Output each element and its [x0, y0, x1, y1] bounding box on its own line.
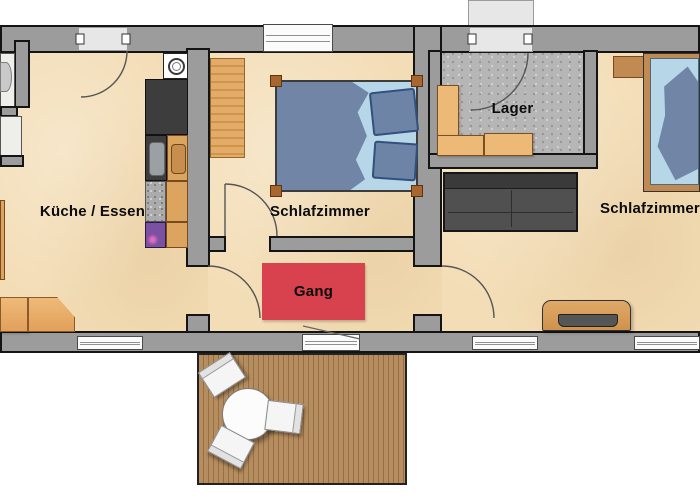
wall-hallway-top-left	[208, 236, 226, 252]
sofa-seam	[511, 190, 512, 227]
middle-bedroom-label: Schlafzimmer	[225, 203, 415, 220]
sink-drainer	[171, 144, 186, 174]
kitchen-window-south	[77, 336, 143, 350]
wardrobe	[210, 58, 245, 158]
kitchen-cabinet-2	[166, 222, 188, 248]
corner-bench-left	[0, 297, 28, 332]
wall-kitchen-bedroom	[186, 48, 210, 267]
double-bed-middle	[275, 80, 418, 192]
wall-left-stub	[14, 40, 30, 108]
middle-bedroom-window	[263, 24, 333, 52]
kitchen-sink-left	[145, 135, 167, 181]
sofa	[443, 172, 578, 232]
nightstand	[613, 56, 645, 78]
storage-shelf-bottom-2	[484, 133, 533, 156]
storage-label: Lager	[442, 100, 583, 117]
kitchen-sink-right	[167, 135, 188, 181]
kitchen-entry-threshold	[78, 27, 128, 51]
right-bedroom-window-south-1	[472, 336, 538, 350]
blanket	[651, 59, 698, 184]
kitchen-counter-dark	[145, 79, 188, 135]
toilet	[0, 62, 12, 92]
wall-side-room-b	[0, 155, 24, 167]
kitchen-label: Küche / Essen	[0, 203, 185, 220]
stove-burner-icon	[168, 58, 185, 75]
dishwasher	[145, 222, 166, 248]
wall-hallway-top-right	[269, 236, 418, 252]
storage-shelf-bottom-1	[437, 135, 484, 156]
desk-tray	[558, 314, 618, 327]
pillow-top	[369, 88, 419, 137]
bed-post	[411, 75, 423, 87]
duvet	[277, 82, 369, 190]
sink-basin	[149, 142, 165, 176]
pillow-bottom	[372, 141, 419, 182]
side-room-partial-2	[0, 116, 22, 156]
sofa-back	[445, 174, 576, 189]
floor-plan: Gang Küche / Essen Schlafzimmer Lager Sc…	[0, 0, 700, 500]
storage-wall-right	[583, 50, 598, 157]
entrance-door	[302, 334, 360, 351]
mattress	[650, 58, 699, 185]
desk	[542, 300, 631, 331]
hallway-rug: Gang	[262, 263, 365, 320]
stove	[163, 53, 188, 79]
hallway-label: Gang	[294, 283, 333, 300]
double-bed-right	[643, 53, 700, 192]
storage-door-opening	[469, 27, 533, 52]
right-bedroom-label: Schlafzimmer	[560, 200, 700, 217]
bed-post	[270, 75, 282, 87]
bed-post	[411, 185, 423, 197]
bed-post	[270, 185, 282, 197]
right-bedroom-window-south-2	[634, 336, 700, 350]
chair-2	[264, 400, 303, 434]
